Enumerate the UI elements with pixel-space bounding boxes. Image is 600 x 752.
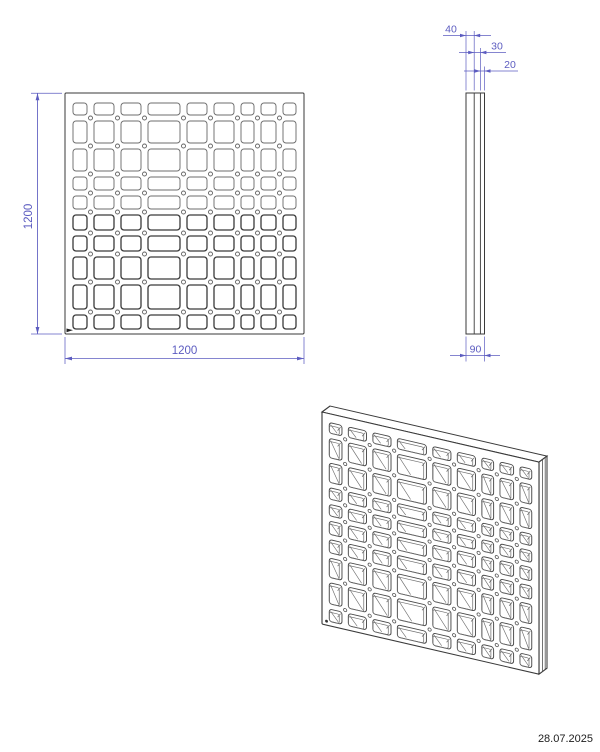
pin-hole-circle [209,172,213,176]
pin-hole-circle [182,210,186,214]
pin-hole-circle [116,310,120,314]
pin-hole-circle [236,252,240,256]
pin-hole-circle [256,191,260,195]
pin-hole-circle [209,144,213,148]
pin-hole-circle [452,582,455,586]
pin-hole-circle [452,529,455,533]
pin-hole-circle [393,593,396,597]
side-dimension-90: 90 [450,337,500,362]
pin-hole-circle [236,172,240,176]
pin-hole-circle [256,231,260,235]
pin-hole-circle [368,526,371,530]
arrowhead-right [460,34,466,38]
pin-hole-circle [428,457,431,461]
pin-hole-circle [209,252,213,256]
pin-hole-circle [89,252,93,256]
pin-hole-circle [182,231,186,235]
pin-hole-circle [236,280,240,284]
pin-hole-circle [428,540,431,544]
pin-hole-circle [182,116,186,120]
pin-hole-circle [515,597,518,601]
pin-hole-circle [236,231,240,235]
pin-hole-circle [477,468,480,472]
pin-hole-circle [515,477,518,481]
pin-hole-circle [236,210,240,214]
pin-hole-circle [278,172,282,176]
pin-hole-circle [89,191,93,195]
pin-hole-circle [428,558,431,562]
arrowhead-left [474,34,480,38]
pin-hole-circle [393,568,396,572]
arrowhead-left [485,69,491,73]
pin-hole-circle [428,628,431,632]
pin-hole-circle [368,443,371,447]
side-dimension-90-label: 90 [470,344,482,356]
pin-hole-circle [452,564,455,568]
pin-hole-circle [368,587,371,591]
pin-hole-circle [182,310,186,314]
pin-hole-circle [344,582,347,586]
pin-hole-circle [515,543,518,547]
pin-hole-circle [344,539,347,543]
pin-hole-circle [209,191,213,195]
pin-hole-circle [256,144,260,148]
pin-hole-circle [116,172,120,176]
pin-hole-circle [143,210,147,214]
pin-hole-circle [452,545,455,549]
pin-hole-circle [344,520,347,524]
pin-hole-circle [209,210,213,214]
pin-hole-circle [143,116,147,120]
side-dimension-20-label: 20 [504,59,516,71]
pin-hole-circle [209,280,213,284]
pin-hole-circle [236,191,240,195]
pin-hole-circle [256,280,260,284]
pin-hole-circle [428,482,431,486]
pin-hole-circle [393,498,396,502]
pin-hole-circle [278,116,282,120]
side-dimension-20: 20 [464,59,518,91]
arrowhead-right [460,354,466,358]
pin-hole-circle [495,643,498,647]
pin-hole-circle [477,493,480,497]
pin-hole-circle [368,614,371,618]
pin-hole-circle [256,310,260,314]
pin-hole-circle [452,487,455,491]
pin-hole-circle [368,544,371,548]
pin-hole-circle [368,563,371,567]
arrowhead-right [468,51,474,55]
pin-hole-circle [89,144,93,148]
pin-hole-circle [368,468,371,472]
pin-hole-circle [89,172,93,176]
pin-hole-circle [256,210,260,214]
pin-hole-circle [278,210,282,214]
pin-hole-circle [477,569,480,573]
pin-hole-circle [182,144,186,148]
pin-hole-circle [495,522,498,526]
pin-hole-circle [428,601,431,605]
side-dimension-40: 40 [443,24,491,91]
pin-hole-circle [368,509,371,513]
pin-hole-circle [452,512,455,516]
pin-hole-circle [236,310,240,314]
arrowhead-left [485,354,491,358]
side-view: 40 30 20 90 [443,24,518,362]
arrowhead-right [297,357,304,361]
pin-hole-circle [278,144,282,148]
pin-hole-circle [143,252,147,256]
pin-hole-circle [209,116,213,120]
pin-hole-circle [256,172,260,176]
drawing-date: 28.07.2025 [538,733,593,745]
side-view-body [466,93,485,334]
front-view-panel [65,93,304,334]
pin-hole-circle [515,648,518,652]
side-dimension-30-label: 30 [491,41,503,53]
pin-hole-circle [515,560,518,564]
side-dimension-40-label: 40 [445,24,457,36]
pin-hole-circle [143,280,147,284]
pin-hole-circle [344,462,347,466]
pin-hole-circle [256,252,260,256]
pin-hole-circle [495,617,498,621]
pin-hole-circle [452,463,455,467]
pin-hole-circle [278,310,282,314]
pin-hole-circle [182,172,186,176]
pin-hole-circle [495,472,498,476]
pin-hole-circle [182,280,186,284]
pin-hole-circle [515,578,518,582]
pin-hole-circle [182,191,186,195]
pin-hole-circle [256,116,260,120]
isometric-view [322,404,547,676]
pin-hole-circle [278,280,282,284]
pin-hole-circle [495,538,498,542]
arrowhead-up [36,93,40,100]
pin-hole-circle [143,310,147,314]
front-width-dimension-label: 1200 [172,345,198,357]
pin-hole-circle [477,534,480,538]
iso-right-face [539,454,547,676]
pin-hole-circle [143,172,147,176]
pin-hole-circle [393,619,396,623]
pin-hole-circle [344,487,347,491]
pin-hole-circle [89,310,93,314]
arrowhead-left [65,357,72,361]
pin-hole-circle [393,531,396,535]
pin-hole-circle [428,523,431,527]
pin-hole-circle [428,577,431,581]
pin-hole-circle [116,116,120,120]
pin-hole-circle [116,210,120,214]
pin-hole-circle [477,517,480,521]
pin-hole-circle [515,526,518,530]
pin-hole-circle [143,231,147,235]
cad-drawing-canvas: 1200 1200 40 [0,0,600,752]
pin-hole-circle [477,588,480,592]
front-view: 1200 1200 [23,93,304,364]
drawing-sheet: 1200 1200 40 [0,0,600,752]
pin-hole-circle [182,252,186,256]
pin-hole-circle [116,191,120,195]
pin-hole-circle [344,608,347,612]
pin-hole-circle [393,515,396,519]
pin-hole-circle [452,607,455,611]
pin-hole-circle [116,231,120,235]
pin-hole-circle [368,492,371,496]
front-width-dimension: 1200 [65,337,304,364]
pin-hole-circle [428,506,431,510]
pin-hole-circle [89,210,93,214]
front-height-dimension-label: 1200 [23,204,35,230]
pin-hole-circle [143,144,147,148]
pin-hole-circle [452,633,455,637]
pin-hole-circle [344,557,347,561]
pin-hole-circle [236,116,240,120]
pin-hole-circle [116,252,120,256]
pin-hole-circle [495,574,498,578]
pin-hole-circle [209,231,213,235]
pin-hole-circle [89,280,93,284]
pin-hole-circle [393,473,396,477]
pin-hole-circle [209,310,213,314]
pin-hole-circle [495,592,498,596]
pin-hole-circle [116,280,120,284]
pin-hole-circle [495,497,498,501]
pin-hole-circle [477,613,480,617]
pin-hole-circle [89,231,93,235]
pin-hole-circle [477,551,480,555]
pin-hole-circle [477,639,480,643]
pin-hole-circle [515,502,518,506]
pin-hole-circle [116,144,120,148]
pin-hole-circle [89,116,93,120]
pin-hole-circle [278,191,282,195]
arrowhead-right [474,69,480,73]
pin-hole-circle [278,231,282,235]
pin-hole-circle [344,503,347,507]
pin-hole-circle [236,144,240,148]
pin-hole-circle [495,555,498,559]
arrowhead-left [480,51,486,55]
pin-hole-circle [278,252,282,256]
pin-hole-circle [344,437,347,441]
arrowhead-down [36,327,40,334]
pin-hole-circle [393,449,396,453]
pin-hole-circle [515,621,518,625]
pin-hole-circle [143,191,147,195]
front-height-dimension: 1200 [23,93,62,334]
pin-hole-circle [393,550,396,554]
